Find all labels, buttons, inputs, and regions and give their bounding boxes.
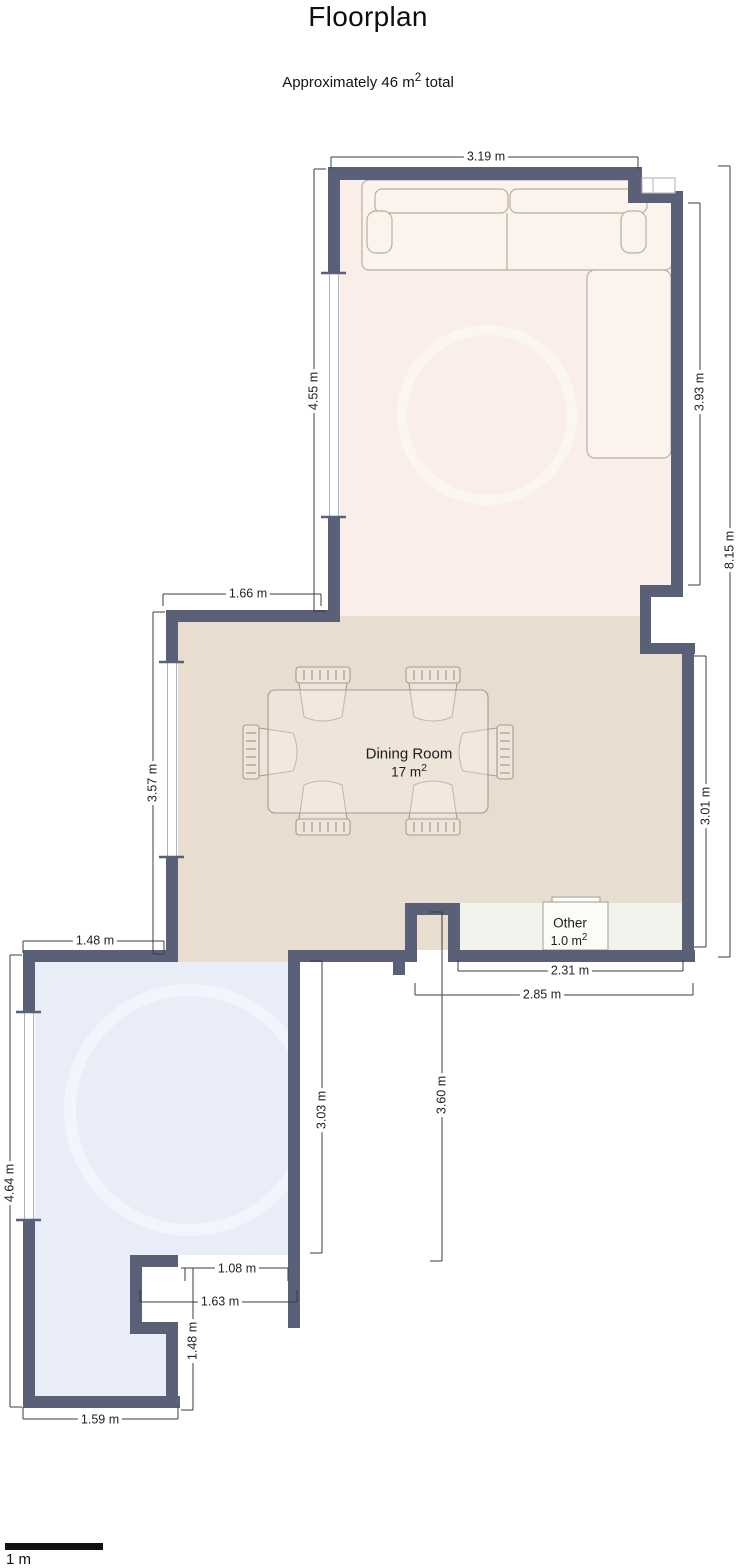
floorplan-drawing	[0, 0, 736, 1568]
dim-label-bottom-room-left-height: 4.64 m	[3, 1161, 18, 1205]
dim-label-dining-right-height: 3.01 m	[699, 784, 714, 828]
dim-label-bottom-room-top-width: 1.48 m	[73, 934, 117, 949]
wall-bottom-room-bottom	[23, 1396, 180, 1408]
dim-label-notch-width: 1.63 m	[198, 1295, 242, 1310]
sofa-back-cushion-right	[510, 189, 647, 213]
dim-label-dining-left-height: 3.57 m	[146, 761, 161, 805]
wall-dining-top	[166, 610, 340, 622]
shelf-body	[642, 178, 675, 193]
dim-label-living-top-width: 3.19 m	[464, 150, 508, 165]
wall-living-left-lower	[328, 517, 340, 622]
dim-label-hall-drop-height: 3.60 m	[435, 1073, 450, 1117]
other-room-name: Other	[553, 916, 587, 931]
wall-dining-left-upper	[166, 610, 178, 662]
dim-label-notch-height: 1.48 m	[186, 1319, 201, 1363]
dim-label-other-bottom-width: 2.31 m	[548, 964, 592, 979]
wall-door-jamb-right	[448, 903, 460, 962]
other-area-value: 1.0 m	[551, 934, 582, 948]
sofa-armrest-left	[367, 211, 392, 253]
wall-bottom-left-of-door	[290, 950, 407, 962]
wall-bottom-room-left-upper	[23, 950, 35, 1012]
sofa-chaise	[587, 270, 671, 458]
sofa-armrest-right	[621, 211, 646, 253]
wall-living-left-upper	[328, 167, 340, 273]
dining-area-value: 17 m	[391, 765, 421, 780]
dim-label-entry-opening-width: 1.08 m	[215, 1262, 259, 1277]
wall-living-top	[328, 167, 642, 180]
dim-label-bottom-room-right-height: 3.03 m	[315, 1088, 330, 1132]
dim-label-bottom-room-bottom-width: 1.59 m	[78, 1413, 122, 1428]
other-room-area: 1.0 m2	[551, 934, 588, 948]
dining-room-name: Dining Room	[366, 746, 453, 763]
scale-bar	[5, 1543, 103, 1550]
wall-door-step	[393, 962, 405, 975]
dim-label-bottom-outer-width: 2.85 m	[520, 988, 564, 1003]
floorplan-page: Floorplan Approximately 46 m2 total	[0, 0, 736, 1568]
dining-area-superscript: 2	[421, 762, 427, 774]
wall-bottom-room-top	[23, 950, 178, 962]
dim-label-total-right-height: 8.15 m	[723, 528, 736, 572]
top-right-shelf	[642, 178, 675, 193]
wall-dining-left-lower	[166, 857, 178, 962]
dim-label-living-left-height: 4.55 m	[307, 369, 322, 413]
wall-dining-right	[682, 643, 694, 962]
dim-label-dining-top-width: 1.66 m	[226, 587, 270, 602]
sofa-back-cushion-left	[375, 189, 508, 213]
wall-niche-right	[166, 1322, 178, 1408]
wall-bottom-room-right	[288, 950, 300, 1328]
other-area-superscript: 2	[582, 932, 587, 943]
wall-bottom-room-left-lower	[23, 1220, 35, 1408]
scale-bar-label: 1 m	[6, 1551, 31, 1568]
dining-room-area: 17 m2	[391, 765, 427, 780]
dim-label-living-right-height: 3.93 m	[693, 370, 708, 414]
wall-living-right	[671, 191, 683, 597]
wall-bottom-right-of-door	[458, 950, 695, 962]
